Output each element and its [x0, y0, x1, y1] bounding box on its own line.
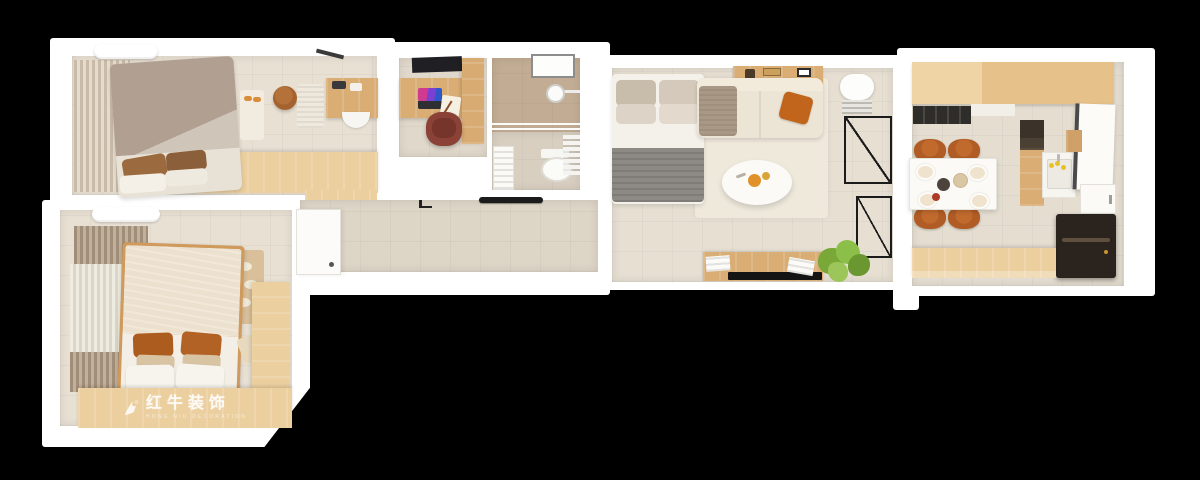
- teapot: [937, 178, 950, 191]
- white-cabinet-kitchen: [1080, 184, 1116, 214]
- watermark-brand: 红牛装饰: [146, 396, 247, 412]
- lower-cabinets-front-lip: [912, 271, 1056, 278]
- office-chair-seat: [432, 118, 456, 138]
- cabinet-top-corridor: [305, 190, 377, 200]
- plant-leaf-3: [848, 254, 870, 276]
- ac-unit-bedroom2: [92, 207, 160, 222]
- vanity-tray: [332, 81, 346, 89]
- ac-unit-bedroom1: [94, 44, 158, 59]
- woven-mat: [953, 173, 968, 188]
- sofa-living: [697, 78, 823, 138]
- plant-living: [818, 240, 870, 284]
- laptop-study: [418, 88, 442, 109]
- wall-shelf-kitchen: [1066, 130, 1082, 152]
- door-handle-dot: [329, 262, 334, 267]
- tall-cabinet-kitchen: [1020, 120, 1044, 206]
- bedside-rug-bedroom1: [240, 90, 264, 140]
- wardrobe-bedroom2-bottom: 红牛装饰 HONG NIU DECORATION: [78, 388, 292, 428]
- lemon-1: [1049, 163, 1054, 168]
- ac-vent-living: [842, 100, 872, 114]
- bed-bedroom1: [109, 56, 242, 198]
- lower-cabinets-dining: [912, 248, 1056, 278]
- pillow-living-2: [659, 80, 699, 106]
- lemon-3: [1061, 165, 1066, 170]
- upper-cabinets-dining: [912, 62, 1114, 104]
- duvet-bedroom2: [123, 245, 242, 337]
- pillow-orange-sofa: [778, 91, 814, 126]
- laptop-keyboard: [418, 101, 442, 109]
- skylight-bathroom: [531, 54, 575, 78]
- coffee-deco-gold: [762, 172, 770, 180]
- coffee-sprig: [736, 172, 746, 178]
- vanity-bathroom: [493, 146, 514, 190]
- duvet-bedroom1: [109, 56, 239, 156]
- metal-rack-living-1: [844, 116, 892, 184]
- wardrobe-bedroom2-side: [252, 282, 290, 394]
- towel-radiator: [563, 135, 580, 175]
- bed-bedroom2: [117, 242, 244, 400]
- dark-sideboard: [1056, 214, 1116, 278]
- bookcase-study: [462, 58, 484, 144]
- sideboard-knob: [1104, 250, 1108, 254]
- sofa-cushion-seam: [759, 91, 761, 138]
- gray-blanket-living: [612, 148, 704, 202]
- magazine-1: [706, 255, 731, 272]
- pillow-living-4: [659, 104, 699, 124]
- tall-cabinet-open-shelf: [1020, 120, 1044, 150]
- slipper-1: [244, 96, 252, 101]
- plate-2: [968, 165, 987, 181]
- watermark: 红牛装饰 HONG NIU DECORATION: [78, 388, 292, 428]
- cooktop-hob: [913, 106, 971, 124]
- coffee-bowl-orange: [748, 174, 761, 187]
- red-cup: [932, 193, 940, 201]
- office-chair-study: [426, 112, 462, 146]
- glass-partition-2: [492, 128, 580, 130]
- coffee-table-living: [722, 160, 792, 205]
- vanity-box: [350, 83, 362, 91]
- pillow-living-3: [616, 104, 656, 124]
- ac-unit-living: [840, 74, 874, 100]
- pillow-white-1: [119, 173, 166, 194]
- apartment-floor-plan-render: 红牛装饰 HONG NIU DECORATION: [0, 0, 1200, 480]
- floor-corridor: [300, 200, 598, 272]
- pouf-bedroom1: [273, 86, 297, 110]
- pillow-living-1: [616, 80, 656, 106]
- wall-monitor-study: [412, 56, 462, 73]
- sideboard-handle-bar: [1062, 238, 1110, 242]
- shower-head-icon: [546, 84, 565, 103]
- white-cabinet-handle: [1109, 195, 1112, 204]
- bed-living: [612, 74, 704, 204]
- counter-strip-dining: [971, 104, 1015, 116]
- sink-counter-kitchen: [1042, 152, 1076, 198]
- console-decor-book: [763, 68, 781, 76]
- coat-hook-corridor: [419, 200, 432, 208]
- throw-blanket-bedroom1: [297, 84, 324, 128]
- console-decor-paper: [799, 70, 809, 75]
- bull-logo-icon: [123, 399, 139, 417]
- lemon-2: [1055, 161, 1060, 166]
- pillow-white-2: [165, 168, 208, 187]
- door-panel-corridor: [296, 209, 341, 275]
- plant-leaf-4: [828, 262, 848, 282]
- glass-partition-1: [492, 123, 580, 125]
- watermark-subtitle: HONG NIU DECORATION: [146, 415, 247, 420]
- slipper-2: [253, 97, 261, 102]
- entry-door-handle: [479, 197, 543, 203]
- plate-4: [970, 193, 989, 209]
- dining-table: [909, 158, 997, 210]
- plate-1: [916, 164, 935, 180]
- chaise-blanket-sofa: [699, 86, 737, 136]
- laptop-screen: [418, 88, 442, 101]
